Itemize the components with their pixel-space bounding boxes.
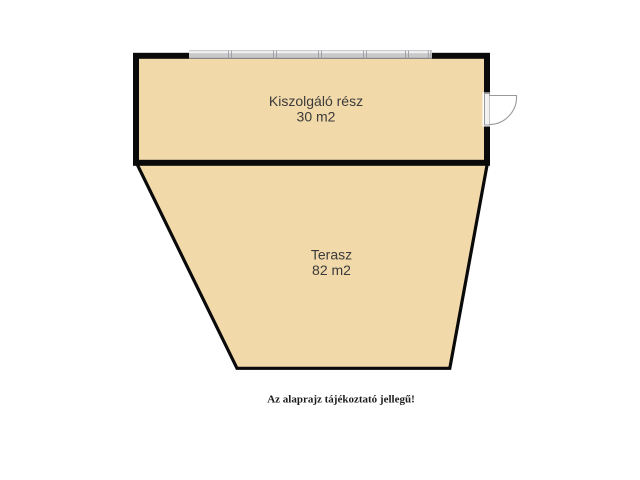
svg-text:Kiszolgáló rész: Kiszolgáló rész: [269, 93, 363, 109]
svg-text:Terasz: Terasz: [311, 247, 352, 263]
svg-text:82 m2: 82 m2: [312, 262, 351, 278]
svg-text:30 m2: 30 m2: [297, 109, 336, 125]
svg-text:Az alaprajz tájékoztató jelleg: Az alaprajz tájékoztató jellegű!: [267, 394, 415, 406]
